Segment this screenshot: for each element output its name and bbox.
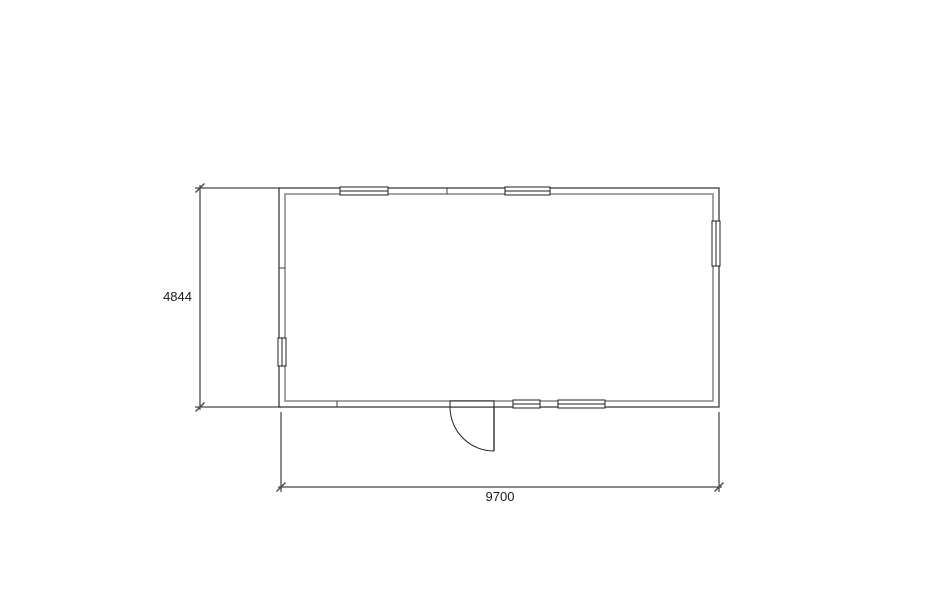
dimension-vertical bbox=[195, 184, 281, 412]
floor-plan-svg: 4844 9700 bbox=[0, 0, 936, 602]
dimension-horizontal bbox=[277, 412, 724, 492]
door-swing-arc bbox=[450, 407, 494, 451]
wall-outer-line bbox=[279, 188, 719, 407]
drawing-page: 4844 9700 bbox=[0, 0, 936, 602]
walls-layer bbox=[279, 188, 719, 407]
door-layer bbox=[450, 401, 494, 451]
dim-width-label: 9700 bbox=[486, 489, 515, 504]
door-threshold bbox=[450, 401, 494, 407]
dim-height-label: 4844 bbox=[163, 289, 192, 304]
